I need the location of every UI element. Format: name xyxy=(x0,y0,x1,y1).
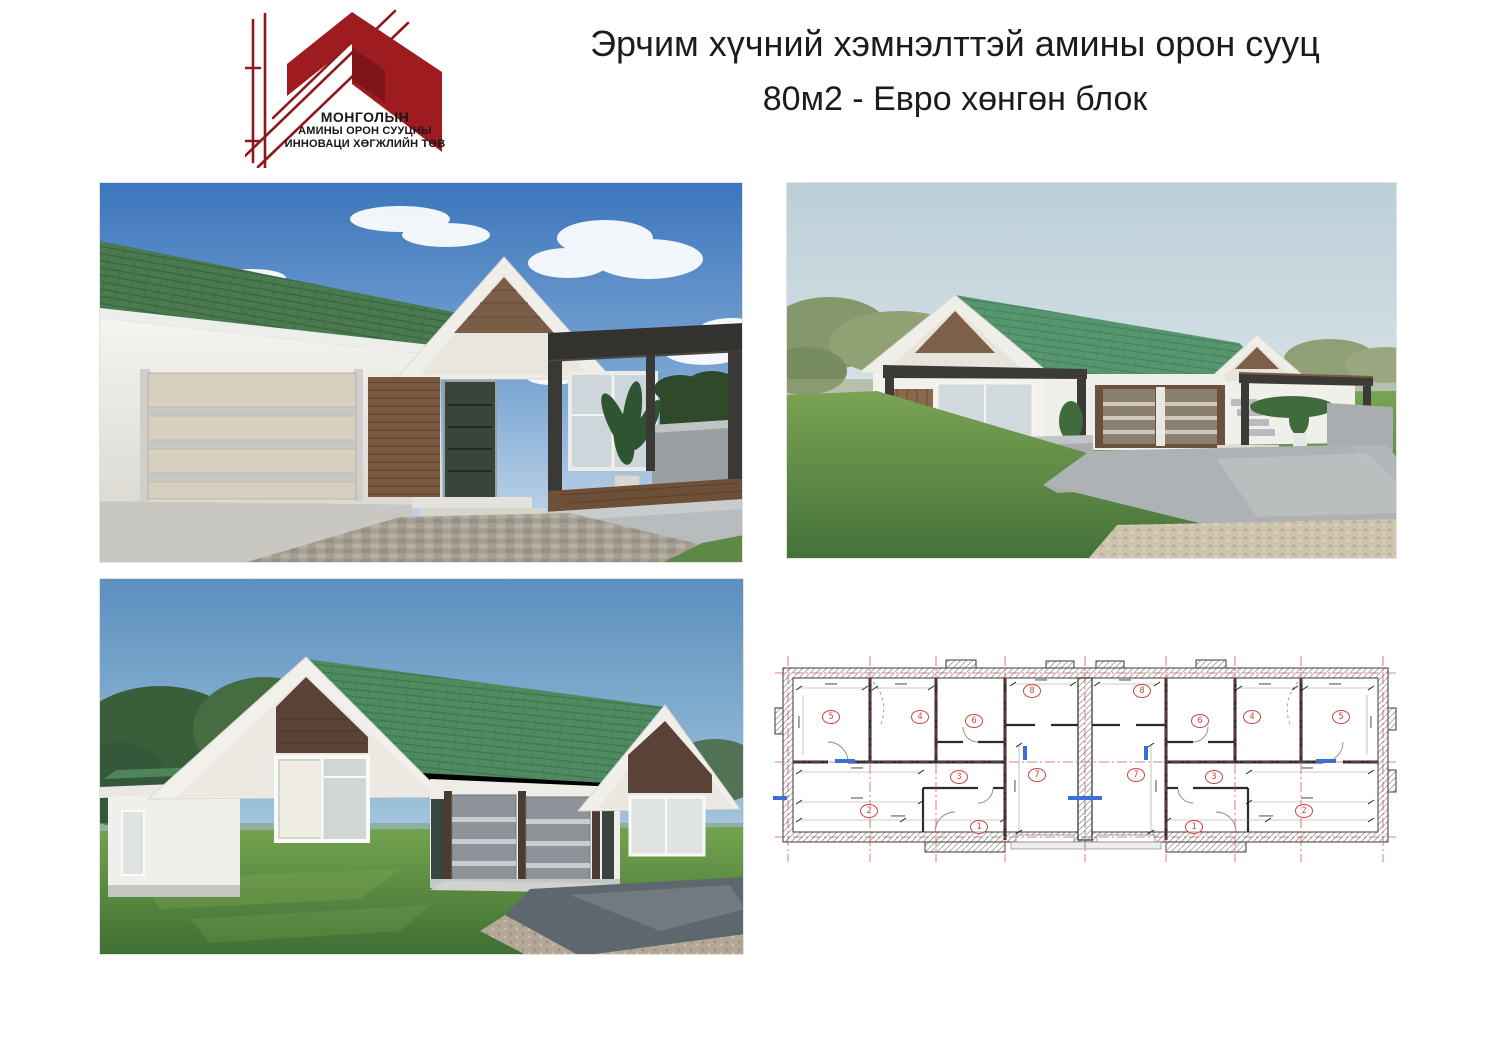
room-label-8-left: 8 xyxy=(1023,684,1041,698)
room-label-4-right: 4 xyxy=(1243,710,1261,724)
room-label-5-left: 5 xyxy=(822,710,840,724)
title-line-1: Эрчим хүчний хэмнэлттэй амины орон сууц xyxy=(450,22,1460,66)
render-entrance-closeup-art xyxy=(100,183,743,563)
room-label-8-right: 8 xyxy=(1133,684,1151,698)
floor-plan-art xyxy=(773,650,1398,868)
room-label-4-left: 4 xyxy=(911,710,929,724)
room-label-6-left: 6 xyxy=(965,714,983,728)
title-line-2: 80м2 - Евро хөнгөн блок xyxy=(450,78,1460,120)
logo-line-3: ИННОВАЦИ ХӨГЖЛИЙН ТӨВ xyxy=(283,138,447,151)
brochure-page: МОНГОЛЫН АМИНЫ ОРОН СУУЦНЫ ИННОВАЦИ ХӨГЖ… xyxy=(0,0,1500,1060)
organization-logo: МОНГОЛЫН АМИНЫ ОРОН СУУЦНЫ ИННОВАЦИ ХӨГЖ… xyxy=(245,6,450,168)
room-label-3-left: 3 xyxy=(950,770,968,784)
render-rear-view-art xyxy=(100,579,744,955)
room-label-5-right: 5 xyxy=(1332,710,1350,724)
room-label-1-right: 1 xyxy=(1185,820,1203,834)
logo-line-1: МОНГОЛЫН xyxy=(283,110,447,125)
render-entrance-closeup xyxy=(99,182,743,563)
room-label-7-left: 7 xyxy=(1028,768,1046,782)
render-rear-view xyxy=(99,578,744,955)
logo-text-block: МОНГОЛЫН АМИНЫ ОРОН СУУЦНЫ ИННОВАЦИ ХӨГЖ… xyxy=(283,110,447,151)
room-label-7-right: 7 xyxy=(1127,768,1145,782)
room-label-3-right: 3 xyxy=(1205,770,1223,784)
render-front-overview-art xyxy=(787,183,1397,559)
logo-line-2: АМИНЫ ОРОН СУУЦНЫ xyxy=(283,125,447,138)
room-label-1-left: 1 xyxy=(970,820,988,834)
floor-plan-drawing: 5 4 6 8 3 7 2 1 8 6 4 5 7 3 2 1 xyxy=(773,650,1398,868)
room-label-2-right: 2 xyxy=(1295,804,1313,818)
render-front-overview xyxy=(786,182,1397,559)
page-title: Эрчим хүчний хэмнэлттэй амины орон сууц … xyxy=(450,22,1460,120)
room-label-6-right: 6 xyxy=(1191,714,1209,728)
room-label-2-left: 2 xyxy=(860,804,878,818)
